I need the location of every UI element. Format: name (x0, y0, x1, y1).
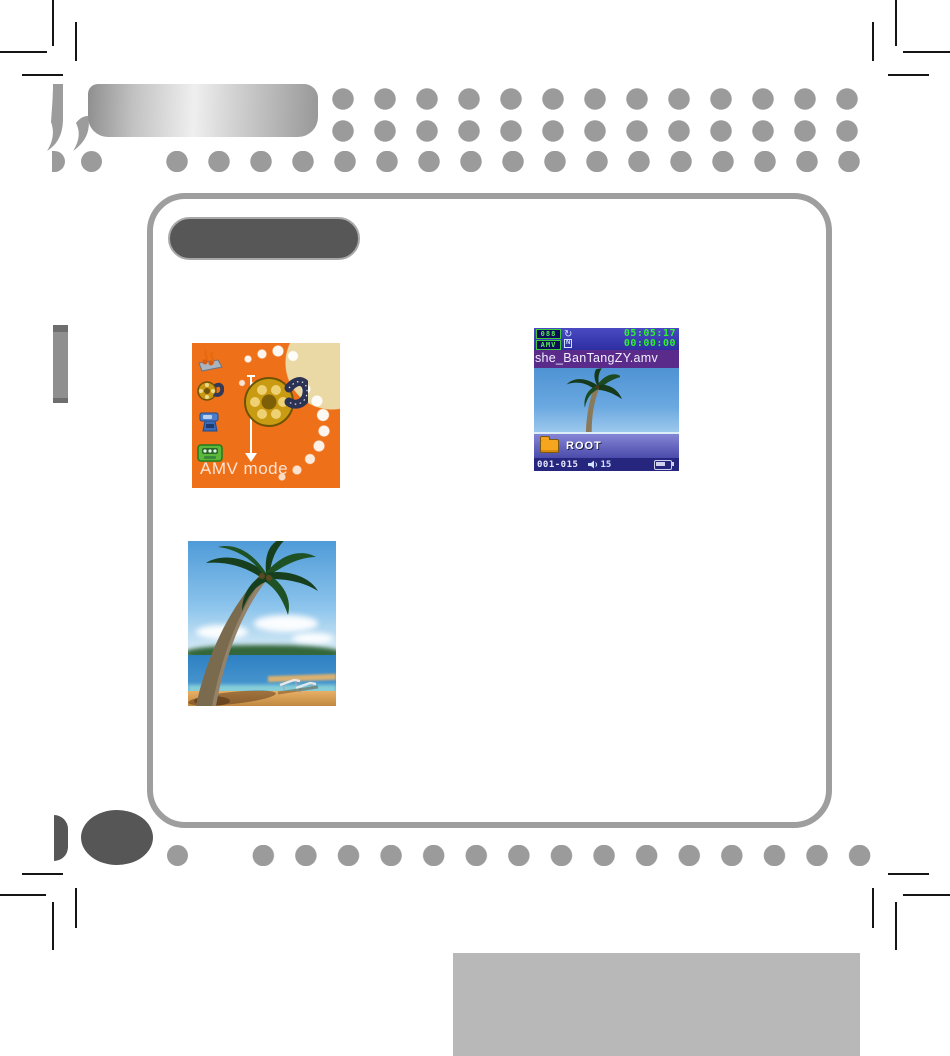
page-edge-tab (53, 325, 68, 403)
dot-decoration (81, 151, 102, 172)
crop-mark (52, 0, 54, 46)
video-player-screenshot: 088 AMV ↻ N 05:05:17 00:00:00 she_BanTan… (534, 328, 679, 471)
crop-mark (22, 74, 63, 76)
repeat-icon: ↻ (564, 330, 572, 339)
palm-tree-video-still (559, 368, 629, 434)
video-filename: she_BanTangZY.amv (534, 350, 679, 368)
folder-bar: ROOT (534, 434, 679, 458)
dot-row-top (156, 151, 870, 172)
volume-indicator: 15 (588, 460, 611, 470)
dot-decoration (167, 845, 188, 866)
amv-mode-menu-screenshot: AMV mode (192, 343, 340, 488)
section-title-pill (168, 217, 360, 260)
crop-mark (0, 894, 46, 896)
dot-row-bottom (242, 845, 881, 866)
manual-page: AMV mode 088 AMV ↻ N 05:05:17 00:00:00 s… (0, 0, 950, 1056)
content-frame (147, 193, 832, 828)
video-frame (534, 368, 679, 434)
film-reel-icon (242, 371, 308, 431)
movie-mode-icon (196, 378, 224, 404)
footer-banner (453, 953, 860, 1056)
status-icons: ↻ N (564, 330, 572, 348)
speaker-icon (588, 460, 598, 469)
crop-mark (52, 902, 54, 950)
file-counter: 001-015 (537, 460, 578, 470)
crop-mark (22, 873, 63, 875)
half-circle-decoration (54, 815, 68, 861)
tab-cap (53, 325, 68, 332)
menu-mode-label: AMV mode (200, 459, 288, 479)
folder-icon (540, 439, 559, 453)
time-elapsed: 00:00:00 (624, 339, 676, 350)
palm-tree-illustration (188, 541, 336, 706)
page-number-ellipse (81, 810, 153, 865)
crop-mark (888, 74, 929, 76)
play-state-icon: N (564, 339, 572, 348)
player-bottom-bar: 001-015 15 (534, 458, 679, 471)
volume-level: 15 (600, 460, 611, 470)
crop-mark (895, 0, 897, 46)
beach-photo (188, 541, 336, 706)
time-display: 05:05:17 00:00:00 (624, 329, 677, 350)
header-banner (88, 84, 318, 137)
music-mode-icon (196, 347, 224, 373)
format-badge: AMV (536, 340, 561, 350)
track-number: 088 (536, 329, 561, 339)
crop-mark (75, 22, 77, 61)
crop-mark (0, 51, 47, 53)
crop-mark (75, 888, 77, 928)
folder-name: ROOT (566, 440, 602, 452)
crop-mark (903, 894, 950, 896)
crop-mark (895, 902, 897, 950)
record-mode-icon (196, 409, 224, 435)
dot-grid-top (322, 83, 868, 147)
crop-mark (872, 22, 874, 61)
crop-mark (903, 51, 950, 53)
crop-mark (888, 873, 929, 875)
beach-chairs (278, 680, 318, 693)
tab-cap (53, 398, 68, 403)
track-format-badge: 088 AMV (536, 329, 561, 350)
battery-icon (654, 460, 672, 470)
crop-mark (872, 888, 874, 928)
player-status-bar: 088 AMV ↻ N 05:05:17 00:00:00 (534, 328, 679, 350)
